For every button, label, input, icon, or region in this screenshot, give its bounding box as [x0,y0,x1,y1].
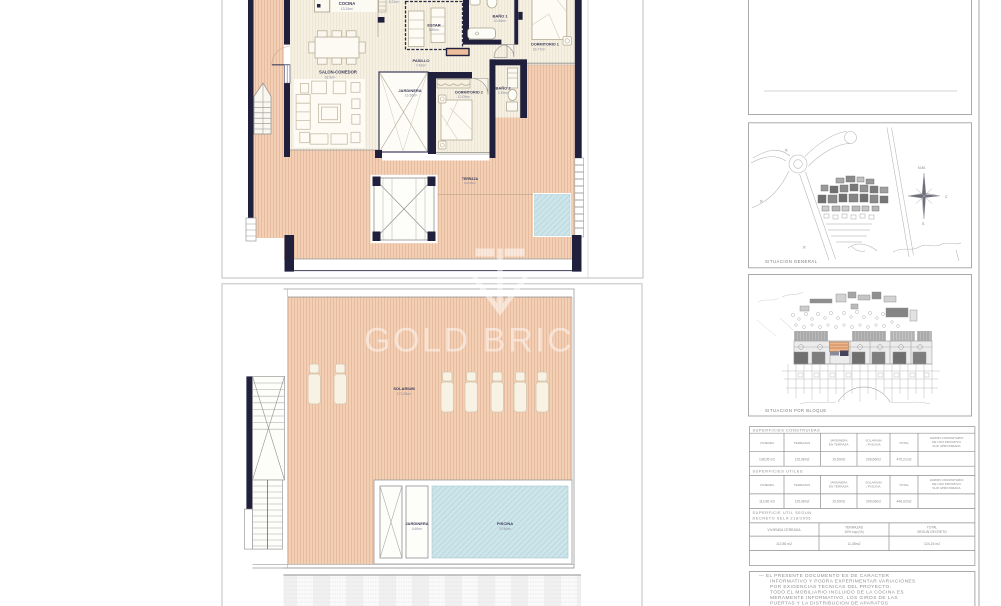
svg-text:10.46m²: 10.46m² [494,19,507,23]
svg-text:BAÑO 1: BAÑO 1 [492,14,508,19]
svg-text:115,08m2: 115,08m2 [795,458,810,462]
svg-text:JARDINERA: JARDINERA [398,88,421,93]
svg-text:4.39m²: 4.39m² [498,91,509,95]
svg-text:171.06m²: 171.06m² [397,392,412,396]
svg-text:TERRAZAS: TERRAZAS [845,526,864,530]
svg-text:4.60m²: 4.60m² [412,527,423,531]
svg-text:EN TERRAZA: EN TERRAZA [829,485,849,489]
svg-text:EN TERRAZA: EN TERRAZA [829,443,849,447]
svg-text:ESTAR: ESTAR [427,23,440,28]
svg-text:DORMITORIO 2: DORMITORIO 2 [455,91,483,95]
svg-text:VIVIENDA: VIVIENDA [760,483,775,487]
svg-text:10,50m2: 10,50m2 [832,500,845,504]
svg-text:206,56m2: 206,56m2 [866,458,881,462]
svg-text:TERRAZAS: TERRAZAS [794,483,811,487]
svg-text:TOTAL: TOTAL [899,483,909,487]
svg-text:SITUACION GENERAL: SITUACION GENERAL [765,259,818,264]
svg-text:SUP. APROXIMADA: SUP. APROXIMADA [932,444,961,448]
svg-text:112,86 m2: 112,86 m2 [759,500,775,504]
svg-text:TOTAL: TOTAL [927,526,938,530]
svg-text:N.M.: N.M. [918,166,926,170]
svg-text:112,86 m2: 112,86 m2 [776,542,792,546]
svg-text:16.77m²: 16.77m² [533,48,546,52]
svg-text:TOTAL: TOTAL [899,441,909,445]
svg-text:BAÑO 2: BAÑO 2 [495,86,511,91]
svg-text:8.80m²: 8.80m² [429,28,440,32]
svg-text:SUP. APROXIMADA: SUP. APROXIMADA [932,486,961,490]
svg-text:7.43m²: 7.43m² [416,64,427,68]
svg-text:209,06m2: 209,06m2 [866,500,881,504]
svg-text:POR EXIGENCIAS TECNICAS DEL: POR EXIGENCIAS TECNICAS DEL PROYECTO. [770,584,891,590]
svg-text:/ PISCINA: / PISCINA [866,443,881,447]
svg-text:SEGUN DECRETO: SEGUN DECRETO [917,530,947,534]
svg-text:115.08m²: 115.08m² [464,181,476,185]
svg-text:SALON-COMEDOR: SALON-COMEDOR [319,70,357,75]
svg-text:6.21m²: 6.21m² [389,0,400,4]
svg-text:16.50m²: 16.50m² [405,94,418,98]
svg-text:INFORMATIVO Y PODRA EXPERIMENT: INFORMATIVO Y PODRA EXPERIMENTAR VARIACI… [770,578,916,584]
svg-text:/ PISCINA: / PISCINA [866,485,881,489]
svg-text:115,08m2: 115,08m2 [795,500,810,504]
svg-text:SOLARIUM: SOLARIUM [393,386,415,391]
svg-text:TERRAZAS: TERRAZAS [794,441,811,445]
svg-text:12.09m²: 12.09m² [458,95,471,99]
svg-text:70.40m²: 70.40m² [499,527,512,531]
svg-text:DECRETO SELA 218/2005: DECRETO SELA 218/2005 [753,517,812,521]
svg-text:COCINA: COCINA [339,1,356,6]
svg-text:138,05 m2: 138,05 m2 [759,458,775,462]
svg-text:C: C [945,195,948,199]
svg-text:GOLD BRICK: GOLD BRICK [364,322,600,360]
svg-text:PISCINA: PISCINA [497,521,513,526]
svg-text:52.9m²: 52.9m² [325,76,336,80]
svg-text:13.24m²: 13.24m² [341,7,354,11]
svg-text:SUPERFICIES CONSTRUIDAS: SUPERFICIES CONSTRUIDAS [753,428,821,432]
svg-text:SITUACION POR BLOQUE: SITUACION POR BLOQUE [765,408,827,413]
svg-text:124,24 m2: 124,24 m2 [924,542,940,546]
svg-text:DORMITORIO 1: DORMITORIO 1 [531,43,559,47]
svg-text:10,50m2: 10,50m2 [832,458,845,462]
svg-text:JARDINERA: JARDINERA [405,521,428,526]
svg-text:11,38m2: 11,38m2 [848,542,861,546]
svg-text:PASILLO: PASILLO [412,58,429,63]
svg-text:— EL PRESENTE DOCUMENTO ES: — EL PRESENTE DOCUMENTO ES DE CARACTER [759,573,889,579]
svg-text:TODO EL MOBILIARIO INCLUIDO: TODO EL MOBILIARIO INCLUIDO DE LA COCINA… [770,589,904,595]
svg-text:470,21m2: 470,21m2 [896,458,911,462]
svg-text:MERAMENTE INFORMATIVO, LOS: MERAMENTE INFORMATIVO, LOS GIROS DE LAS [770,595,898,601]
svg-text:VIVIENDA: VIVIENDA [760,441,775,445]
svg-text:SUPERFICIE UTIL SEGUN: SUPERFICIE UTIL SEGUN [753,511,812,515]
svg-text:PUERTAS Y LA DISTRIBUCION: PUERTAS Y LA DISTRIBUCION DE APARATOS [770,600,888,606]
svg-text:10% sup.(%): 10% sup.(%) [844,530,863,534]
svg-text:446,02m2: 446,02m2 [896,500,911,504]
svg-text:SUPERFICIES UTILES: SUPERFICIES UTILES [753,470,803,474]
svg-text:VIVIENDA CERRADA: VIVIENDA CERRADA [767,528,801,532]
